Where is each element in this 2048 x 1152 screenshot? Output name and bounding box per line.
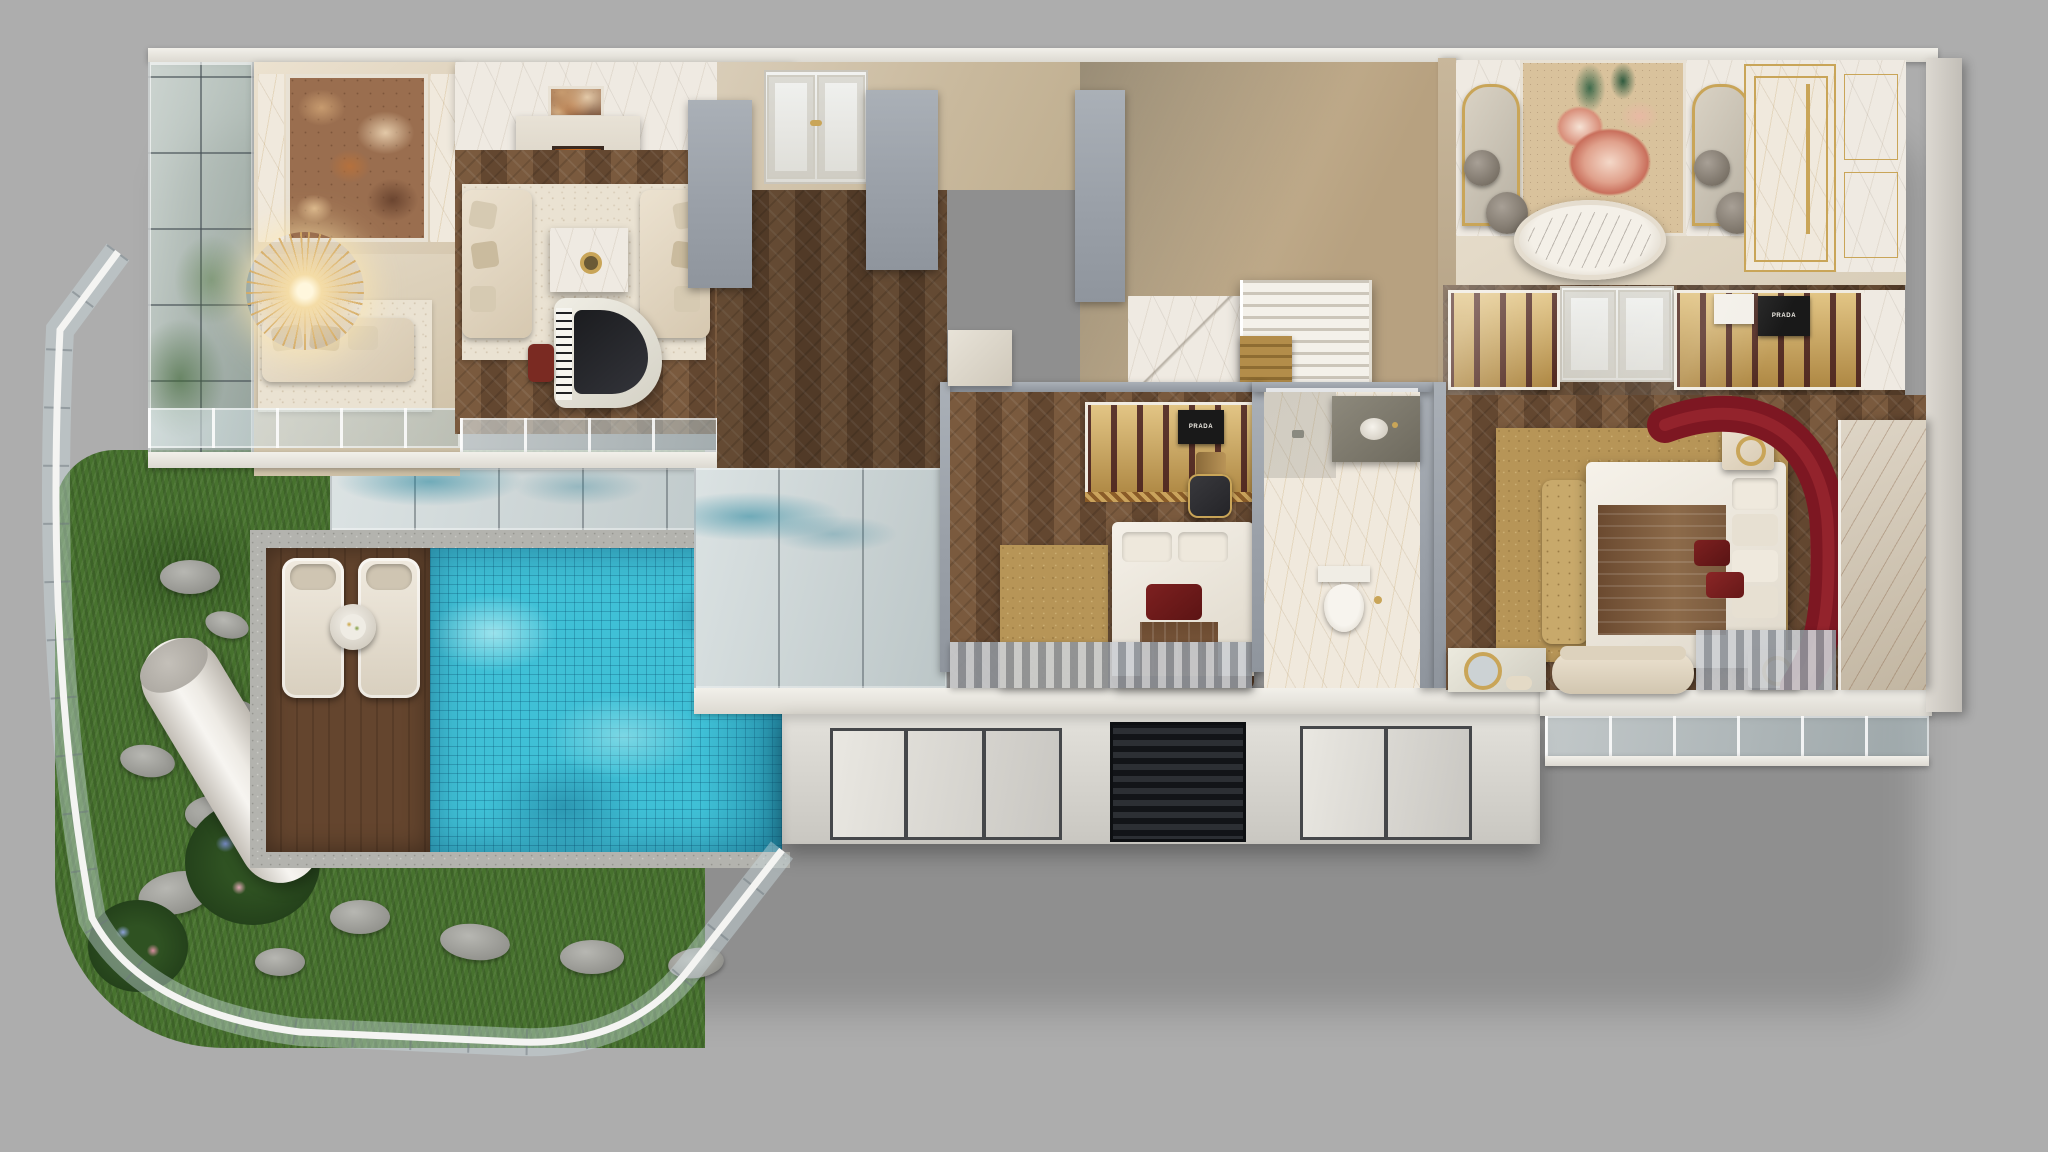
penthouse-3d-floorplan: PRADA PRADA	[0, 0, 2048, 1152]
curved-balcony-railing	[0, 0, 2048, 1152]
